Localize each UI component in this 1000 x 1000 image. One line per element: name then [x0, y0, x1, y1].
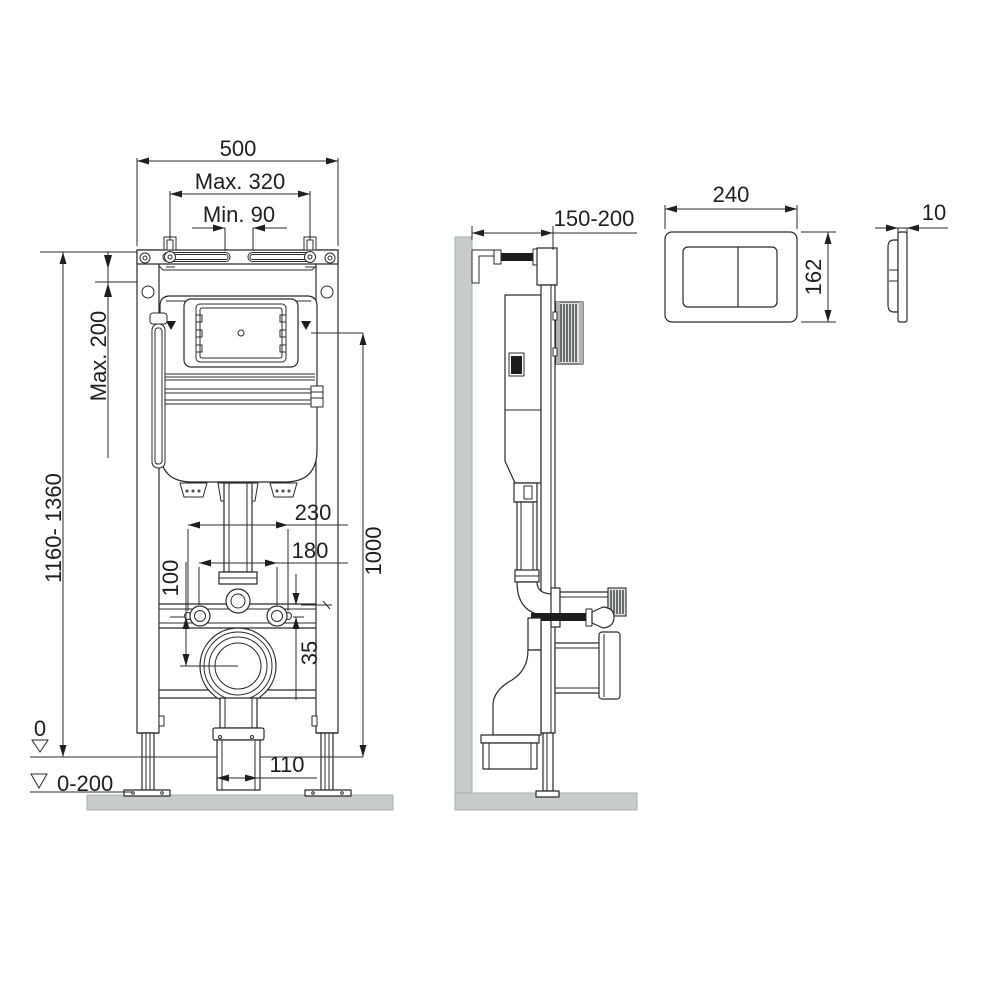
dim-frame-height-range: 1160- 1360 — [41, 252, 67, 757]
flush-buttons — [683, 247, 777, 307]
overflow-tube — [150, 313, 167, 468]
plate-profile — [898, 232, 907, 322]
bowl-inlet-ring — [226, 589, 250, 613]
bracket-threaded-rod — [500, 253, 535, 261]
dim-label-180: 180 — [292, 538, 329, 563]
dim-label-1000: 1000 — [361, 527, 386, 576]
leg-left — [142, 733, 154, 790]
dim-label-1160-1360: 1160- 1360 — [41, 473, 66, 583]
dim-plate-width-240: 240 — [665, 182, 797, 229]
dim-label-35: 35 — [297, 641, 322, 665]
dim-label-min-90: Min. 90 — [203, 202, 275, 227]
rail-hole-left — [142, 286, 154, 298]
dim-label-110: 110 — [269, 752, 304, 777]
inspection-window — [184, 299, 298, 367]
fill-valve-mark — [511, 356, 522, 374]
technical-drawing-page: 500 Max. 320 Min. 90 Max. 200 — [0, 0, 1000, 1000]
corner-screw-left — [140, 253, 150, 263]
corner-screw-right — [325, 253, 335, 263]
floor-socket-lip — [481, 735, 539, 743]
side-latch-right — [311, 386, 323, 407]
bracket-nut — [494, 250, 501, 264]
level-label-0-200: 0-200 — [57, 771, 113, 796]
foot-plate-side — [536, 791, 559, 797]
dim-label-230: 230 — [295, 500, 332, 525]
cistern-tank — [150, 296, 323, 501]
sleeve-clip-bottom — [553, 348, 557, 356]
wc-frame-drawing: 500 Max. 320 Min. 90 Max. 200 — [0, 0, 1000, 1000]
drain-outlet-spigot — [213, 698, 264, 790]
side-view — [455, 237, 637, 810]
floor-level-marks: 0 0-200 — [30, 716, 363, 796]
flush-plate-side-view: 10 — [875, 200, 948, 322]
waste-drain-opening — [180, 628, 276, 704]
level-triangle-icon-zero — [32, 740, 48, 752]
dim-label-240: 240 — [713, 182, 750, 207]
dim-wall-distance-150-200: 150-200 — [472, 206, 637, 250]
level-label-zero: 0 — [34, 716, 46, 741]
flush-plate-front-view: 240 162 — [665, 182, 836, 322]
dim-drain-offset-100: 100 — [158, 560, 190, 666]
spigot-body — [217, 740, 260, 790]
dim-label-150-200: 150-200 — [554, 206, 635, 231]
dim-label-max-200: Max. 200 — [86, 311, 111, 402]
horn-flange — [599, 632, 620, 699]
side-view-dimensions: 150-200 — [472, 206, 637, 250]
dim-anchors-min-90: Min. 90 — [192, 202, 287, 251]
floor-socket — [483, 743, 537, 769]
sleeve-clip-top — [553, 312, 557, 320]
dim-top-offset-max-200: Max. 200 — [40, 252, 137, 458]
dim-plate-height-162: 162 — [801, 232, 836, 322]
rod-washer — [586, 609, 592, 626]
floor-slab-front — [87, 795, 393, 810]
leg-clamp-left — [159, 716, 164, 726]
dim-plate-thickness-10: 10 — [875, 200, 948, 234]
dim-label-max-320: Max. 320 — [195, 169, 286, 194]
front-view — [87, 237, 393, 810]
leg-right — [321, 733, 333, 790]
dim-label-10: 10 — [922, 200, 946, 225]
wall-bracket — [472, 249, 539, 283]
wall-section — [455, 237, 472, 793]
dim-label-162: 162 — [801, 259, 826, 296]
dim-label-500: 500 — [220, 136, 257, 161]
slot-bolt-left — [165, 252, 176, 263]
rail-hole-right — [321, 286, 333, 298]
plate-mechanism-body — [888, 240, 898, 312]
waste-outlet-horn — [555, 632, 620, 699]
corrugated-sleeve — [556, 302, 583, 364]
drain-elbow-side — [481, 618, 541, 769]
cistern-tank-side — [505, 295, 541, 483]
leg-clamp-right — [312, 716, 317, 726]
dim-label-100: 100 — [158, 560, 183, 597]
frame-top-section-side — [537, 248, 557, 285]
protection-cone — [592, 607, 614, 628]
flush-pipe-assembly — [219, 483, 257, 584]
level-triangle-icon-floor — [31, 774, 47, 788]
slot-bolt-right — [305, 252, 316, 263]
